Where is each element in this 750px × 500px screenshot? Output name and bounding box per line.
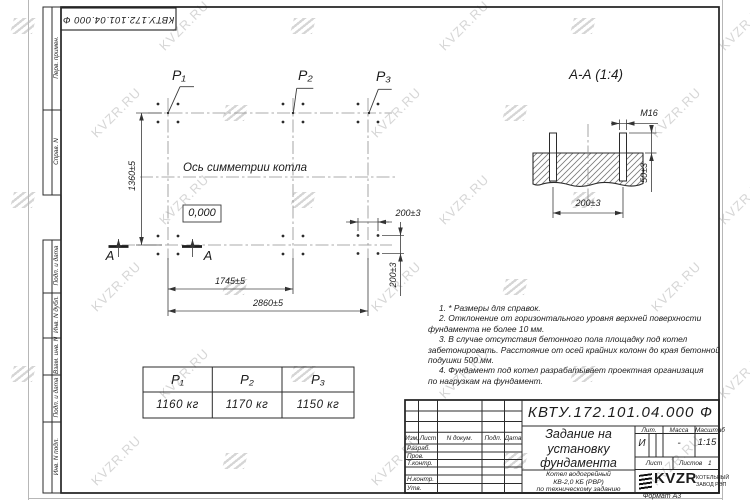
margin-field-inv-n-podl: Инв. N подл. — [53, 421, 60, 492]
margin-field-podp-i-data-2: Подп. и дата — [53, 374, 60, 421]
title-line-3: фундамента — [522, 457, 635, 471]
drawing-sheet: KVZR.RUKVZR.RUKVZR.RUKVZR.RUKVZR.RUKVZR.… — [0, 0, 750, 500]
change-col-izm: Изм. — [405, 435, 419, 442]
note-line: 4. Фундамент под котел разрабатывает про… — [428, 365, 720, 375]
note-line: забетонировать. Расстояние от осей крайн… — [428, 345, 720, 355]
scale-value: 1:15 — [695, 438, 719, 448]
title-line-1: Задание на — [522, 428, 635, 442]
scale-label: Масштаб — [695, 427, 719, 434]
support-label-p1: P₁ — [172, 68, 186, 83]
mass-label: Масса — [663, 427, 695, 434]
notes: 1. * Размеры для справок. 2. Отклонение … — [428, 303, 720, 386]
loads-table-value-p2: 1170 кг — [212, 392, 282, 418]
product-line-3: по техническому заданию — [522, 486, 635, 493]
change-col-list: Лист — [418, 435, 438, 442]
note-line: по нагрузкам на фундамент. — [428, 376, 720, 386]
sheets-label: Листов — [679, 460, 702, 467]
company-name-line1: КОТЕЛЬНЫЙ — [696, 476, 729, 482]
margin-field-vzam-inv-n: Взам. инв. N — [53, 337, 60, 374]
sign-row-nkontr: Н.контр. — [407, 476, 434, 483]
sign-row-razrab: Разраб. — [407, 445, 430, 452]
sign-row-prov: Пров. — [407, 453, 424, 460]
section-letter-right: А — [200, 249, 216, 263]
loads-table-value-p3: 1150 кг — [282, 392, 354, 418]
title-line-2: установку — [522, 443, 635, 457]
section-letter-left: А — [102, 249, 118, 263]
dim-height-1360: 1360±5 — [128, 149, 138, 203]
dim-section-spacing-200: 200±3 — [568, 199, 608, 209]
sign-row-tkontr: Т.контр. — [407, 460, 433, 467]
support-label-p2: P₂ — [298, 68, 313, 83]
change-col-podp: Подп. — [482, 435, 504, 442]
note-line: подушки 500 мм. — [428, 355, 720, 365]
dim-width-2860: 2860±5 — [238, 299, 298, 309]
elevation-mark: 0,000 — [183, 205, 221, 222]
lit-label: Лит. — [635, 427, 663, 434]
company-name-line2: ЗАВОД РЭП — [696, 483, 726, 489]
company-logo-text: KVZR — [654, 471, 697, 488]
change-col-dokum: N докум. — [437, 435, 482, 442]
dim-width-1745: 1745±5 — [200, 277, 260, 287]
loads-table-value-p1: 1160 кг — [143, 392, 212, 418]
margin-field-podp-i-data-1: Подп. и дата — [53, 239, 60, 292]
dim-bolt-spacing-x: 200±3 — [388, 209, 428, 219]
note-line: фундамента не более 10 мм. — [428, 324, 720, 334]
loads-table-header-p1: P₁ — [143, 367, 212, 392]
dim-protrusion-50: 50±3 — [640, 153, 650, 193]
change-col-data: Дата — [504, 435, 522, 442]
sign-row-utv: Утв. — [407, 485, 422, 492]
loads-table-header-p3: P₃ — [282, 367, 354, 392]
mass-value: - — [663, 438, 695, 449]
sheet-label: Лист — [635, 460, 673, 467]
dim-thread-m16: M16 — [636, 109, 662, 119]
margin-field-inv-n-dubl: Инв. N дубл. — [53, 292, 60, 337]
margin-field-perv-primen: Перв. примен. — [53, 6, 60, 109]
title-block-doc-number: КВТУ.172.101.04.000 Ф — [522, 400, 719, 426]
lit-value: И — [635, 438, 649, 449]
product-line-2: КВ-2,0 КБ (РВР) — [522, 479, 635, 486]
sheets-value: 1 — [708, 460, 712, 467]
section-view-title: А-А (1:4) — [546, 68, 646, 83]
top-stamp-doc-number: КВТУ.172.101.04.000 Ф — [61, 8, 176, 30]
format-label: Формат А3 — [632, 493, 692, 500]
margin-field-sprav-n: Справ. N — [53, 109, 60, 194]
product-line-1: Котел водогрейный — [522, 471, 635, 478]
loads-table-header-p2: P₂ — [212, 367, 282, 392]
note-line: 3. В случае отсутствия бетонного пола пл… — [428, 334, 720, 344]
company-logo-coil-icon — [639, 473, 652, 490]
support-label-p3: P₃ — [376, 69, 391, 84]
note-line: 1. * Размеры для справок. — [428, 303, 720, 313]
note-line: 2. Отклонение от горизонтального уровня … — [428, 313, 720, 323]
dim-bolt-spacing-y: 200±3 — [389, 255, 399, 295]
boiler-symmetry-axis-label: Ось симметрии котла — [183, 162, 307, 175]
